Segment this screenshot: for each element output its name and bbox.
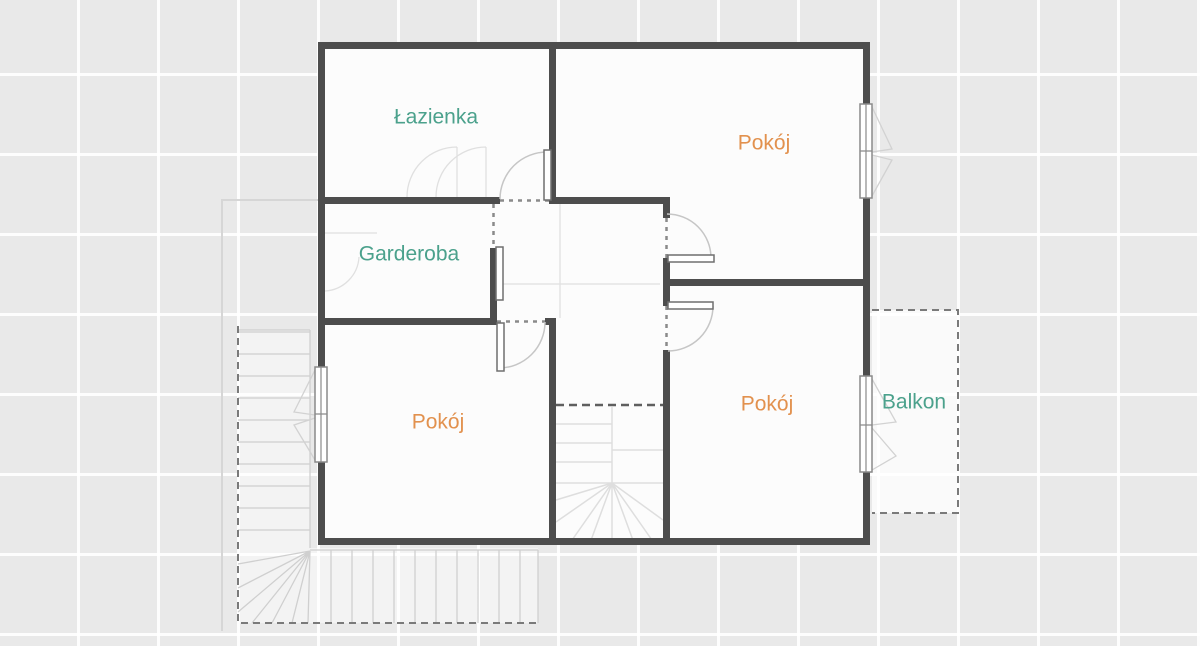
wall-right-rooms-divider: [663, 279, 870, 286]
window-top-right: [860, 104, 892, 198]
room-label-pokoj-top-right: Pokój: [738, 131, 791, 154]
room-label-lazienka: Łazienka: [394, 105, 478, 128]
room-label-pokoj-bottom-right: Pokój: [741, 392, 794, 415]
wall-exterior-top: [318, 42, 870, 49]
wall-center-stub: [663, 197, 670, 218]
wall-center-lower: [663, 350, 670, 545]
floor-plan: Łazienka Pokój Garderoba Pokój Pokój Bal…: [0, 0, 1200, 646]
wall-hall-top: [549, 197, 670, 204]
floor-plan-canvas: Łazienka Pokój Garderoba Pokój Pokój Bal…: [0, 0, 1200, 646]
room-label-garderoba: Garderoba: [359, 242, 460, 265]
door-garderoba-sliding: [496, 247, 503, 300]
room-label-balkon: Balkon: [882, 390, 946, 413]
wall-bathroom-bottom: [318, 197, 500, 204]
wall-garderoba-bottom: [318, 318, 495, 325]
wall-exterior-left: [318, 42, 325, 545]
room-label-pokoj-bottom-left: Pokój: [412, 410, 465, 433]
wall-exterior-bottom: [318, 538, 870, 545]
wall-staircase-left: [549, 318, 556, 545]
